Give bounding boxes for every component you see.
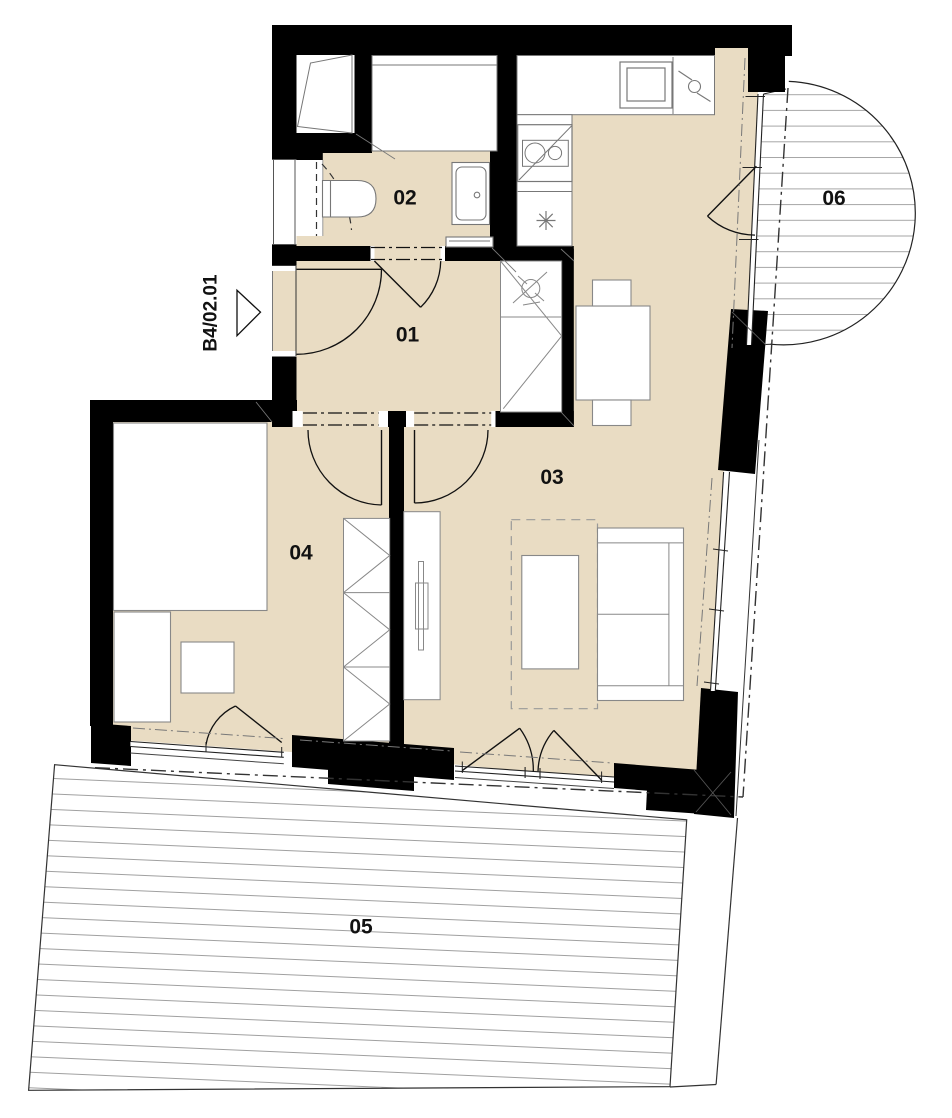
- svg-text:02: 02: [393, 187, 416, 210]
- svg-text:03: 03: [540, 466, 563, 489]
- svg-text:06: 06: [822, 187, 845, 210]
- svg-text:B4/02.01: B4/02.01: [201, 274, 222, 352]
- svg-text:04: 04: [289, 542, 313, 565]
- svg-text:01: 01: [396, 324, 420, 347]
- svg-text:05: 05: [349, 916, 373, 939]
